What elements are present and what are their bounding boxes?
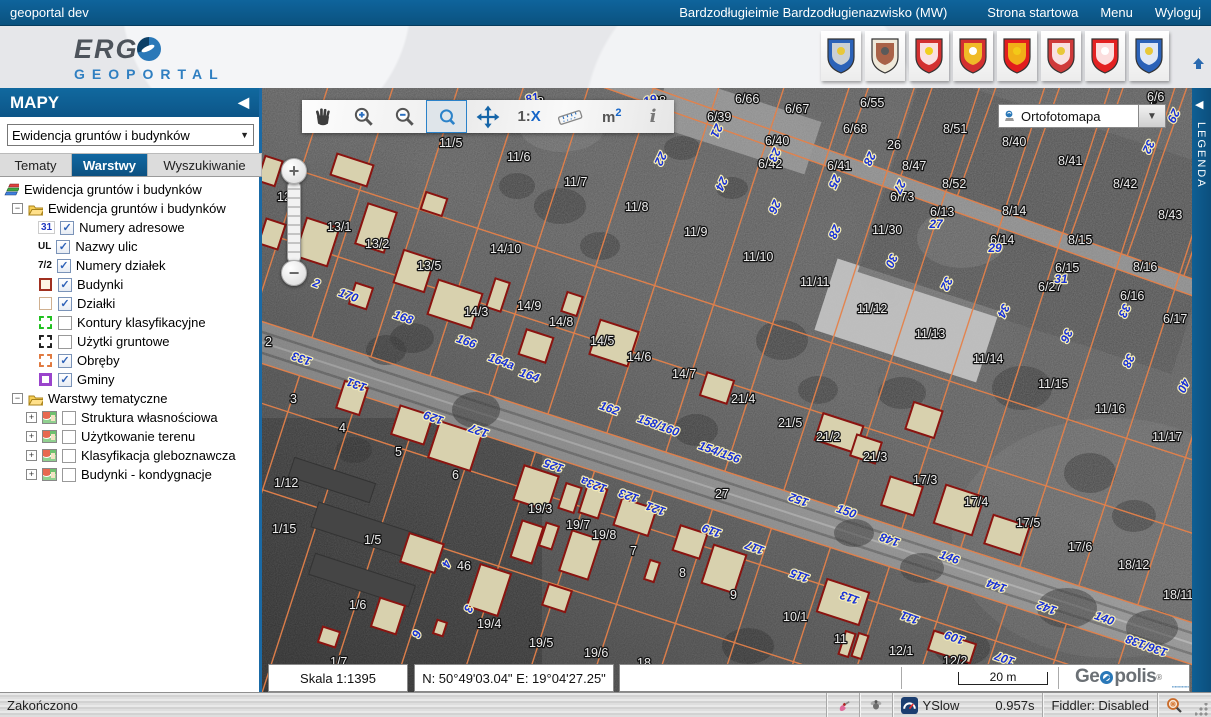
herb-2-crest[interactable] — [865, 31, 905, 81]
parcel-label: 8/16 — [1133, 260, 1157, 274]
brush-cell[interactable] — [826, 693, 859, 717]
parcel-label: 1/15 — [272, 522, 296, 536]
scale-x: X — [531, 108, 541, 125]
shield-icon — [1090, 37, 1120, 75]
tree-item-label: Obręby — [77, 353, 120, 368]
fiddler-status-cell[interactable]: Fiddler: Disabled — [1042, 693, 1157, 717]
geopolis-o-icon — [1100, 671, 1113, 684]
yslow-cell[interactable]: YSlow 0.957s — [892, 693, 1043, 717]
parcel-label: 7 — [630, 544, 637, 558]
map-select-value: Ewidencja gruntów i budynków — [12, 128, 190, 143]
herb-1-crest[interactable] — [821, 31, 861, 81]
parcel-label: 11/15 — [1038, 377, 1068, 391]
tab-wyszukiwanie[interactable]: Wyszukiwanie — [148, 154, 262, 176]
parcel-label: 11/10 — [743, 250, 773, 264]
parcel-label: 8 — [679, 566, 686, 580]
sidebar-maps-panel: MAPY ◀ Ewidencja gruntów i budynków ▼ Te… — [0, 88, 262, 692]
tree-item-nazwy-ulic[interactable]: UL✓Nazwy ulic — [0, 237, 259, 256]
address-label: 29 — [987, 241, 1002, 255]
parcel-label: 8/43 — [1158, 208, 1182, 222]
fly-icon — [868, 697, 884, 713]
tree-item-label: Działki — [77, 296, 115, 311]
parcel-label: 8/40 — [1002, 135, 1026, 149]
parcel-label: 8/15 — [1068, 233, 1092, 247]
shield-icon — [914, 37, 944, 75]
parcel-label: 11/14 — [973, 352, 1003, 366]
layer-checkbox[interactable] — [62, 411, 76, 425]
link-menu[interactable]: Menu — [1100, 5, 1133, 20]
parcel-label: 19/5 — [529, 636, 553, 650]
tree-item-użytkowanie-terenu[interactable]: +Użytkowanie terenu — [0, 427, 259, 446]
parcel-label: 19/8 — [592, 528, 616, 542]
layers-icon — [4, 182, 19, 197]
layer-checkbox[interactable]: ✓ — [58, 373, 72, 387]
tree-item-label: Budynki - kondygnacje — [81, 467, 212, 482]
thememap-icon — [42, 410, 57, 425]
parcel-label: 11/11 — [800, 275, 829, 289]
parcel-label: 19/7 — [566, 518, 590, 532]
collapse-left-icon[interactable]: ◀ — [238, 94, 249, 111]
tree-item-budynki-kondygnacje[interactable]: +Budynki - kondygnacje — [0, 465, 259, 484]
zoom-in-button[interactable] — [343, 100, 384, 133]
layer-checkbox[interactable]: ✓ — [56, 240, 70, 254]
basemap-icon — [1003, 109, 1017, 123]
scale-readout: Skala 1:1395 — [268, 664, 408, 692]
move-arrows-icon — [476, 105, 500, 129]
parcel-label: 6/66 — [735, 92, 759, 106]
herb-5-crest[interactable] — [997, 31, 1037, 81]
tree-item-label: Użytki gruntowe — [77, 334, 169, 349]
text-badge-icon: UL — [38, 241, 51, 252]
shield-icon — [1002, 37, 1032, 75]
ergo-brand-text: ERG — [74, 34, 139, 64]
parcel-label: 6/40 — [765, 134, 789, 148]
parcel-label: 8/14 — [1002, 204, 1026, 218]
parcel-label: 14/10 — [490, 242, 521, 256]
yslow-gauge-icon — [901, 697, 918, 714]
dashblack-icon — [38, 334, 53, 349]
sqplain-icon — [38, 296, 53, 311]
parcel-label: 11/30 — [872, 223, 902, 237]
sidebar-title: MAPY — [10, 93, 59, 113]
parcel-label: 21/5 — [778, 416, 802, 430]
tree-item-struktura-własnościowa[interactable]: +Struktura własnościowa — [0, 408, 259, 427]
parcel-label: 11/5 — [439, 136, 462, 150]
parcel-label: 6/68 — [843, 122, 867, 136]
parcel-label: 8/47 — [902, 159, 926, 173]
zoom-slider-plus-button[interactable]: + — [281, 158, 307, 184]
parcel-label: 14/7 — [672, 367, 696, 381]
shield-icon — [870, 37, 900, 75]
folder-icon — [28, 391, 43, 406]
parcel-label: 4 — [339, 421, 346, 435]
shield-icon — [1134, 37, 1164, 75]
link-logout[interactable]: Wyloguj — [1155, 5, 1201, 20]
basemap-value: Ortofotomapa — [1021, 109, 1101, 124]
legend-strip[interactable]: ◀ LEGENDA — [1192, 88, 1211, 692]
layer-checkbox[interactable] — [62, 430, 76, 444]
parcel-label: 6/55 — [860, 96, 884, 110]
parcel-label: 14/5 — [590, 334, 614, 348]
layer-checkbox[interactable] — [58, 316, 72, 330]
layer-tree: Ewidencja gruntów i budynków−Ewidencja g… — [0, 180, 259, 692]
zoom-slider-minus-button[interactable]: − — [281, 260, 307, 286]
scale-prefix: 1: — [517, 108, 530, 125]
layer-checkbox[interactable]: ✓ — [57, 259, 71, 273]
search-cell[interactable] — [1157, 693, 1191, 717]
thememap-icon — [42, 429, 57, 444]
tree-item-label: Warstwy tematyczne — [48, 391, 167, 406]
tree-item-ewidencja-gruntów-i-budynków[interactable]: −Ewidencja gruntów i budynków — [0, 199, 259, 218]
ruler-icon — [557, 106, 583, 128]
parcel-label: 1/6 — [349, 598, 366, 612]
tree-item-obręby[interactable]: ✓Obręby — [0, 351, 259, 370]
text-badge-icon: 7/2 — [38, 260, 52, 271]
parcel-label: 14/3 — [464, 305, 488, 319]
parcel-label: 11/6 — [507, 150, 530, 164]
parcel-label: 11/17 — [1152, 430, 1182, 444]
panel-divider — [1058, 667, 1059, 689]
parcel-label: 18/12 — [1118, 558, 1149, 572]
herb-8-crest[interactable] — [1129, 31, 1169, 81]
scale-text: Skala 1:1395 — [300, 671, 376, 686]
parcel-label: 17/3 — [913, 473, 937, 487]
address-badge-icon: 31 — [38, 221, 55, 234]
tree-item-label: Budynki — [77, 277, 123, 292]
chevron-down-icon: ▼ — [240, 130, 249, 140]
scalebar: 20 m — [958, 672, 1048, 685]
herb-3-crest[interactable] — [909, 31, 949, 81]
address-label: 31 — [1054, 272, 1068, 286]
tree-item-label: Ewidencja gruntów i budynków — [24, 182, 202, 197]
area-exp: 2 — [615, 107, 621, 119]
ergo-o-icon — [137, 37, 161, 61]
coords-readout: N: 50°49'03.04" E: 19°04'27.25" — [414, 664, 614, 692]
parcel-label: 13/2 — [365, 237, 389, 251]
measure-length-button[interactable] — [550, 100, 591, 133]
sqpurple-icon — [38, 372, 53, 387]
zoom-slider-track[interactable] — [287, 180, 301, 264]
hand-icon — [312, 106, 334, 128]
coords-text: N: 50°49'03.04" E: 19°04'27.25" — [422, 671, 606, 686]
parcel-label: 27 — [715, 487, 729, 501]
parcel-label: 17/4 — [964, 495, 988, 509]
legend-open-icon[interactable]: ◀ — [1195, 98, 1203, 111]
tree-item-label: Gminy — [77, 372, 115, 387]
parcel-label: 6/67 — [785, 102, 809, 116]
fiddler-status: Fiddler: Disabled — [1051, 698, 1149, 713]
parcel-label: 8/51 — [943, 122, 967, 136]
herb-4-crest[interactable] — [953, 31, 993, 81]
collapse-toggle[interactable]: − — [12, 393, 23, 404]
parcel-label: 11/12 — [857, 302, 887, 316]
tree-item-numery-działek[interactable]: 7/2✓Numery działek — [0, 256, 259, 275]
parcel-label: 3 — [290, 392, 297, 406]
ergo-logo: ERG GEOPORTAL — [74, 34, 225, 82]
map-status-row: Skala 1:1395 N: 50°49'03.04" E: 19°04'27… — [262, 662, 1192, 692]
tree-item-label: Struktura własnościowa — [81, 410, 218, 425]
shield-icon — [826, 37, 856, 75]
area-m: m — [602, 109, 615, 126]
parcel-label: 11/9 — [684, 225, 707, 239]
tree-item-klasyfikacja-gleboznawcza[interactable]: +Klasyfikacja gleboznawcza — [0, 446, 259, 465]
map-toolbar: 1:X m2 i — [302, 100, 674, 133]
parcel-label: 14/8 — [549, 315, 573, 329]
parcel-label: 14/9 — [517, 299, 541, 313]
parcel-label: 11/16 — [1095, 402, 1125, 416]
parcel-label: 11/7 — [564, 175, 587, 189]
parcel-label: 21/2 — [816, 430, 840, 444]
scale-button[interactable]: 1:X — [508, 100, 549, 133]
expand-toggle[interactable]: + — [26, 431, 37, 442]
geopolis-logo: Gepolis® ▪▪▪▪▪▪▪▪▪▪▪▪ — [1075, 666, 1187, 688]
brush-icon — [835, 697, 851, 713]
thememap-icon — [42, 448, 57, 463]
move-button[interactable] — [467, 100, 508, 133]
parcel-label: 13/1 — [327, 220, 351, 234]
parcel-label: 19/3 — [528, 502, 552, 516]
panel-divider — [901, 667, 902, 689]
municipal-crests — [821, 31, 1169, 81]
basemap-value-box[interactable]: Ortofotomapa — [998, 104, 1139, 128]
zoom-out-icon — [394, 106, 416, 128]
parcel-label: 6/6 — [1147, 90, 1164, 104]
legend-label: LEGENDA — [1195, 122, 1207, 189]
folder-icon — [28, 201, 43, 216]
shield-icon — [1046, 37, 1076, 75]
shield-icon — [958, 37, 988, 75]
collapse-up-icon[interactable] — [1191, 56, 1206, 71]
expand-toggle[interactable]: + — [26, 412, 37, 423]
expand-toggle[interactable]: + — [26, 450, 37, 461]
geopolis-tagline: ▪▪▪▪▪▪▪▪▪▪▪▪ — [1172, 684, 1189, 689]
parcel-label: 17/6 — [1068, 540, 1092, 554]
parcel-label: 2 — [265, 335, 272, 349]
app-title: geoportal dev — [10, 5, 89, 20]
layer-checkbox[interactable]: ✓ — [60, 221, 74, 235]
tree-item-gminy[interactable]: ✓Gminy — [0, 370, 259, 389]
thememap-icon — [42, 467, 57, 482]
parcel-label: 11/8 — [625, 200, 648, 214]
resize-grip[interactable] — [1195, 703, 1209, 717]
dashgreen-icon — [38, 315, 53, 330]
sqred-icon — [38, 277, 53, 292]
geoportal-window: geoportal dev Bardzodługieimie Bardzodłu… — [0, 0, 1211, 717]
layer-checkbox[interactable]: ✓ — [58, 297, 72, 311]
yslow-label: YSlow — [923, 698, 960, 713]
herb-6-crest[interactable] — [1041, 31, 1081, 81]
parcel-label: 46 — [457, 559, 471, 573]
parcel-label: 26 — [887, 138, 901, 152]
tree-item-label: Kontury klasyfikacyjne — [77, 315, 206, 330]
tree-item-kontury-klasyfikacyjne[interactable]: Kontury klasyfikacyjne — [0, 313, 259, 332]
expand-toggle[interactable]: + — [26, 469, 37, 480]
measure-area-button[interactable]: m2 — [591, 100, 632, 133]
status-bar: Zakończono YSlo — [0, 692, 1211, 717]
layer-checkbox[interactable] — [62, 468, 76, 482]
tab-tematy[interactable]: Tematy — [0, 154, 72, 176]
link-home[interactable]: Strona startowa — [987, 5, 1078, 20]
parcel-label: 12/1 — [889, 644, 913, 658]
dashorange-icon — [38, 353, 53, 368]
parcel-label: 8/52 — [942, 177, 966, 191]
tree-item-warstwy-tematyczne[interactable]: −Warstwy tematyczne — [0, 389, 259, 408]
tree-item-działki[interactable]: ✓Działki — [0, 294, 259, 313]
info-icon: i — [650, 106, 657, 127]
status-text: Zakończono — [0, 698, 826, 713]
parcel-label: 8/42 — [1113, 177, 1137, 191]
scalebar-panel: 20 m Gepolis® ▪▪▪▪▪▪▪▪▪▪▪▪ — [619, 664, 1190, 692]
zoom-in-icon — [353, 106, 375, 128]
parcel-label: 8/41 — [1058, 154, 1082, 168]
tree-item-label: Klasyfikacja gleboznawcza — [81, 448, 236, 463]
basemap-dropdown-button[interactable]: ▼ — [1139, 104, 1166, 128]
parcel-label: 11/13 — [915, 327, 945, 341]
parcel-label: 5 — [395, 445, 402, 459]
tree-item-użytki-gruntowe[interactable]: Użytki gruntowe — [0, 332, 259, 351]
parcel-label: 19/4 — [477, 617, 501, 631]
tab-warstwy[interactable]: Warstwy — [72, 154, 148, 176]
sidebar-tabs: Tematy Warstwy Wyszukiwanie — [0, 153, 262, 177]
info-button[interactable]: i — [632, 100, 673, 133]
zoom-box-icon — [436, 106, 458, 128]
basemap-selector: Ortofotomapa ▼ — [998, 104, 1166, 128]
parcel-label: 1/5 — [364, 533, 381, 547]
tree-item-label: Nazwy ulic — [75, 239, 137, 254]
parcel-label: 10/1 — [783, 610, 807, 624]
parcel-label: 13/5 — [417, 259, 441, 273]
parcel-label: 6/41 — [827, 159, 851, 173]
top-bar: geoportal dev Bardzodługieimie Bardzodłu… — [0, 0, 1211, 26]
parcel-label: 6 — [452, 468, 459, 482]
parcel-label: 21/3 — [863, 450, 887, 464]
zoom-box-button[interactable] — [426, 100, 467, 133]
parcel-label: 14/6 — [627, 350, 651, 364]
tree-item-label: Numery adresowe — [79, 220, 185, 235]
parcel-label: 11 — [834, 632, 847, 646]
layer-checkbox[interactable] — [58, 335, 72, 349]
logged-user: Bardzodługieimie Bardzodługienazwisko (M… — [679, 5, 947, 20]
address-label: 27 — [928, 217, 944, 231]
magnifier-icon — [1166, 697, 1183, 714]
tree-item-label: Użytkowanie terenu — [81, 429, 195, 444]
parcel-label: 9 — [730, 588, 737, 602]
pan-hand-button[interactable] — [302, 100, 343, 133]
herb-7-crest[interactable] — [1085, 31, 1125, 81]
tree-item-ewidencja-gruntów-i-budynków[interactable]: Ewidencja gruntów i budynków — [0, 180, 259, 199]
parcel-label: 1/12 — [274, 476, 298, 490]
parcel-label: 18/11 — [1163, 588, 1192, 602]
zoom-out-button[interactable] — [385, 100, 426, 133]
layer-checkbox[interactable] — [62, 449, 76, 463]
fiddler-fly-cell[interactable] — [859, 693, 892, 717]
layer-checkbox[interactable]: ✓ — [58, 278, 72, 292]
parcel-label: 17/5 — [1016, 516, 1040, 530]
logo-band: ERG GEOPORTAL — [0, 26, 1211, 88]
parcel-label: 21/4 — [731, 392, 755, 406]
tree-item-label: Ewidencja gruntów i budynków — [48, 201, 226, 216]
map-select-dropdown[interactable]: Ewidencja gruntów i budynków ▼ — [7, 124, 254, 146]
parcel-label: 6/17 — [1163, 312, 1187, 326]
tree-item-budynki[interactable]: ✓Budynki — [0, 275, 259, 294]
map-canvas[interactable]: 183856/666/676/556/396/688/518/406/40266… — [262, 88, 1192, 692]
layer-checkbox[interactable]: ✓ — [58, 354, 72, 368]
yslow-time: 0.957s — [995, 698, 1034, 713]
parcel-label: 19/6 — [584, 646, 608, 660]
parcel-label: 6/16 — [1120, 289, 1144, 303]
map-area[interactable]: 183856/666/676/556/396/688/518/406/40266… — [262, 88, 1192, 692]
parcel-label: 6/39 — [707, 110, 731, 124]
tree-item-numery-adresowe[interactable]: 31✓Numery adresowe — [0, 218, 259, 237]
collapse-toggle[interactable]: − — [12, 203, 23, 214]
ergo-subtitle: GEOPORTAL — [74, 66, 225, 82]
tree-item-label: Numery działek — [76, 258, 166, 273]
